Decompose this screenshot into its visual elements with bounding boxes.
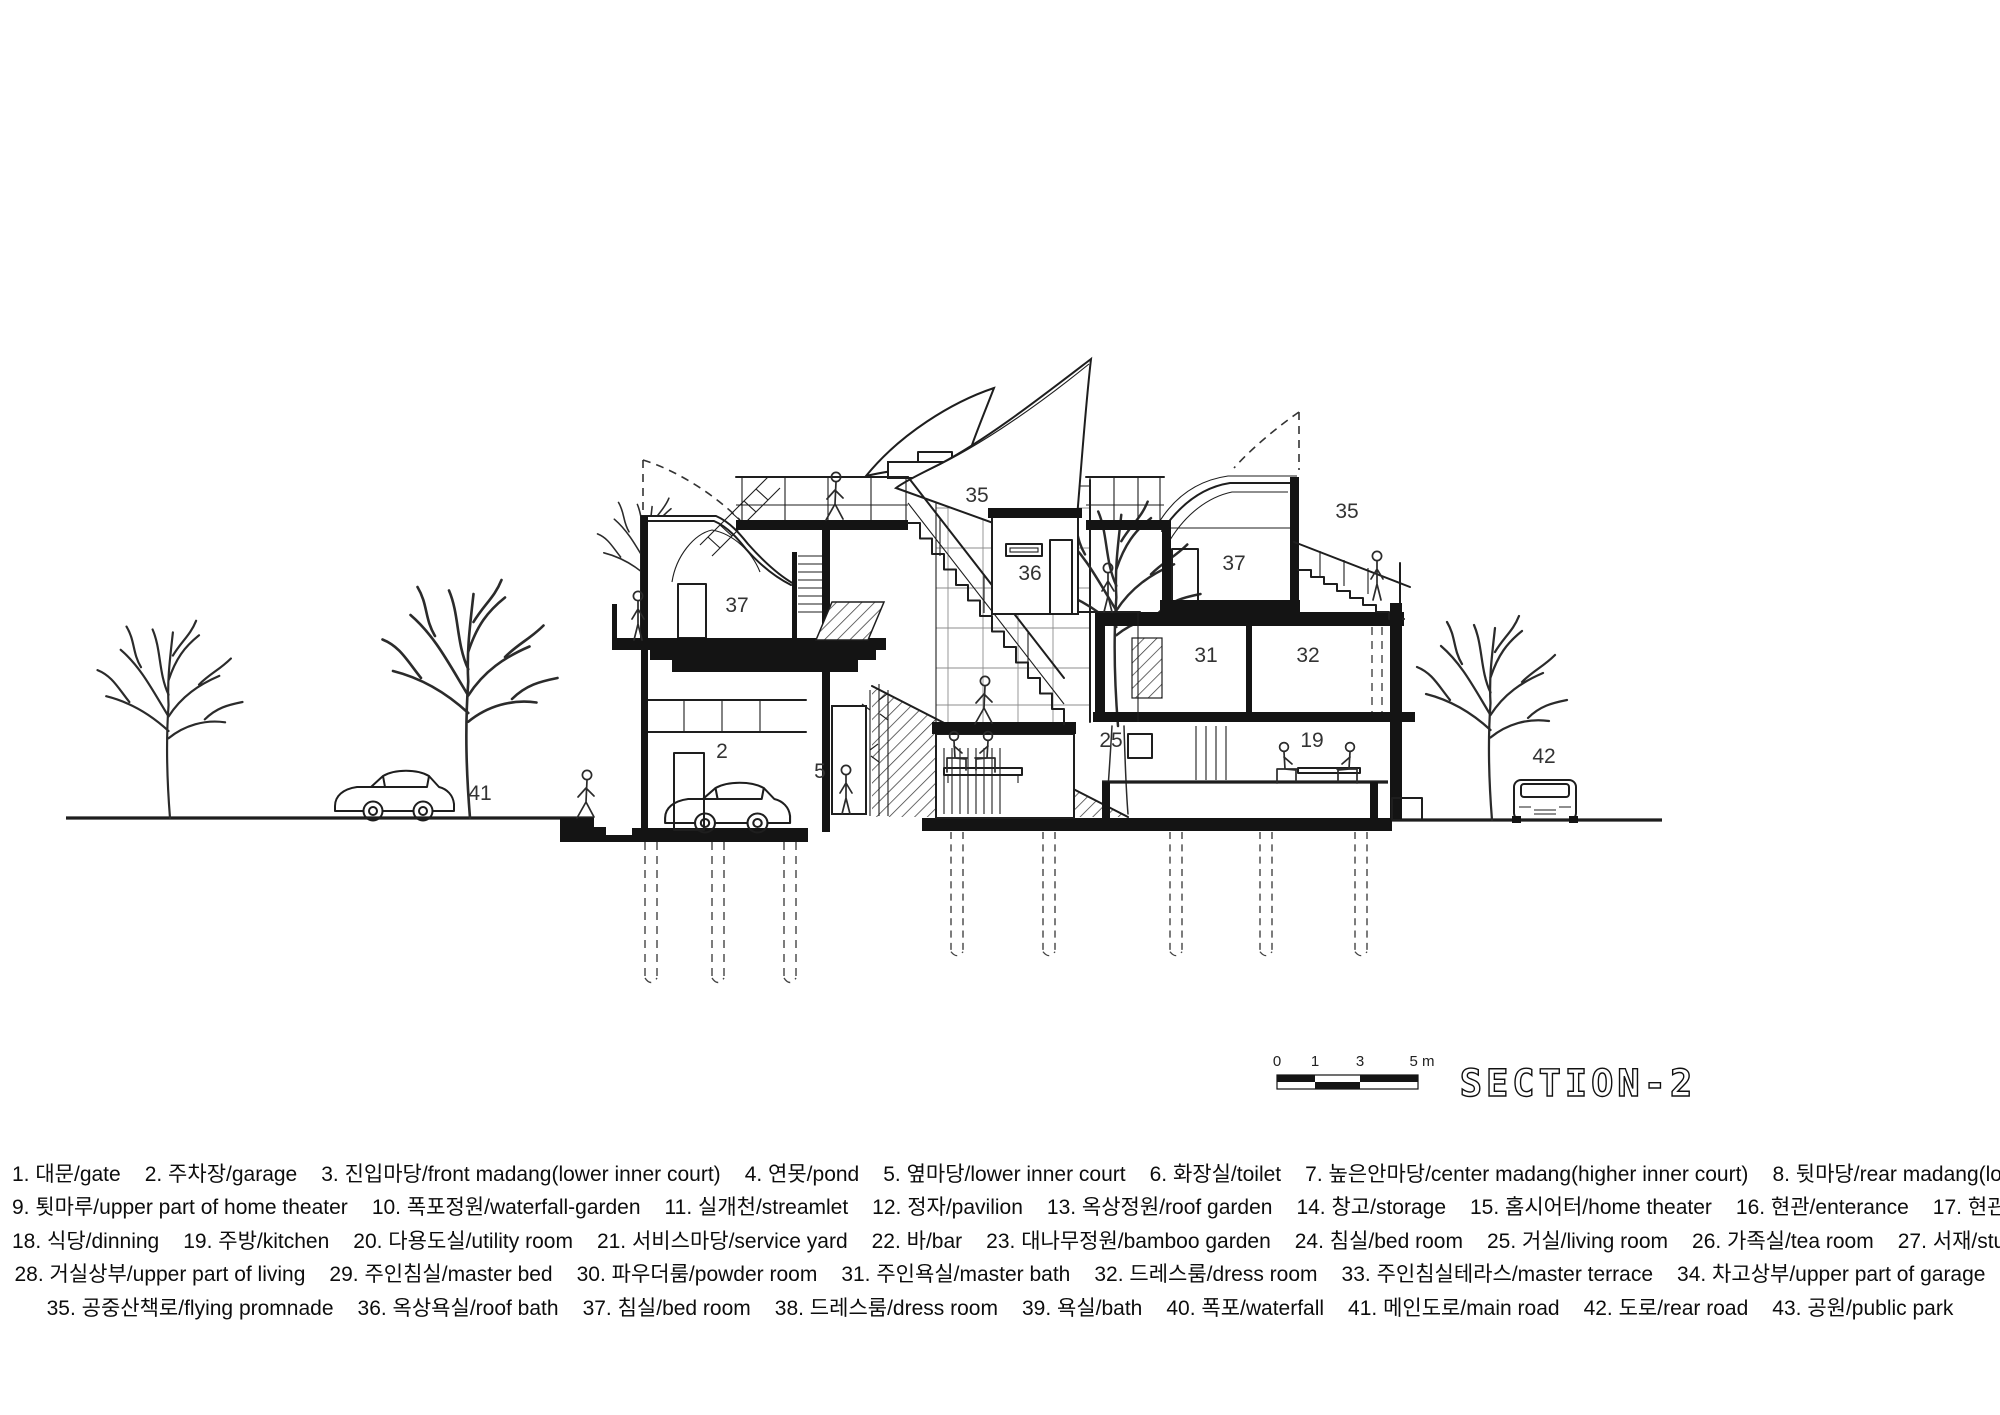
legend-item: 42. 도로/rear road	[1584, 1297, 1749, 1320]
legend-row: 1. 대문/gate2. 주차장/garage3. 진입마당/front mad…	[0, 1158, 2000, 1191]
left-building	[612, 460, 886, 832]
drawing-title: SECTION-2	[1460, 1062, 1696, 1105]
car-rear-road	[1512, 780, 1578, 823]
legend-item: 13. 옥상정원/roof garden	[1047, 1196, 1273, 1219]
legend-item: 9. 툇마루/upper part of home theater	[12, 1196, 348, 1219]
legend-item: 19. 주방/kitchen	[183, 1230, 329, 1253]
room-number-label: 35	[965, 484, 988, 507]
legend-item: 25. 거실/living room	[1487, 1230, 1668, 1253]
car-in-garage	[665, 783, 790, 833]
architectural-section-sheet: 353637373531322519254142 0 1 3 5 m SECTI…	[0, 0, 2000, 1415]
scale-tick: 0	[1273, 1053, 1281, 1070]
room-number-label: 35	[1335, 500, 1358, 523]
dashed-door	[1372, 627, 1382, 712]
legend-item: 7. 높은안마당/center madang(higher inner cour…	[1305, 1163, 1748, 1186]
partition-wall	[1246, 623, 1252, 712]
legend-item: 40. 폭포/waterfall	[1166, 1297, 1324, 1320]
scale-tick: 1	[1311, 1053, 1319, 1070]
wall-cabinet	[1128, 734, 1152, 758]
legend-item: 36. 옥상욕실/roof bath	[358, 1297, 559, 1320]
legend-item: 16. 현관/enterance	[1736, 1196, 1909, 1219]
room-number-label: 37	[1222, 552, 1245, 575]
legend-item: 37. 침실/bed room	[583, 1297, 751, 1320]
legend-item: 38. 드레스룸/dress room	[775, 1297, 998, 1320]
legend-item: 15. 홈시어터/home theater	[1470, 1196, 1712, 1219]
room-number-label: 5	[814, 760, 826, 783]
legend-item: 4. 연못/pond	[745, 1163, 860, 1186]
legend-item: 10. 폭포정원/waterfall-garden	[372, 1196, 641, 1219]
wall	[822, 523, 830, 832]
bedroom-floor-slab	[1160, 600, 1300, 612]
legend-item: 20. 다용도실/utility room	[353, 1230, 573, 1253]
legend-item: 2. 주차장/garage	[145, 1163, 298, 1186]
room-number-label: 31	[1194, 644, 1217, 667]
setback-dashed-left	[643, 460, 740, 520]
scale-bar: 0 1 3 5 m	[1273, 1053, 1435, 1089]
scale-tick: 3	[1356, 1053, 1364, 1070]
garage-window-band	[684, 700, 760, 732]
car-main-road	[335, 771, 454, 821]
wall	[1095, 612, 1105, 720]
room-number-label: 42	[1532, 745, 1555, 768]
legend-item: 6. 화장실/toilet	[1150, 1163, 1282, 1186]
court-door-niche	[832, 706, 866, 814]
house-foundation-slab	[922, 818, 1392, 831]
lattice-shaft	[1132, 638, 1162, 698]
legend-item: 23. 대나무정원/bamboo garden	[986, 1230, 1271, 1253]
rear-terrace-stair	[1298, 570, 1404, 619]
room-legend: 1. 대문/gate2. 주차장/garage3. 진입마당/front mad…	[0, 1158, 2000, 1325]
legend-item: 22. 바/bar	[872, 1230, 963, 1253]
room-number-label: 37	[725, 594, 748, 617]
deck-slab	[736, 520, 908, 530]
legend-item: 24. 침실/bed room	[1295, 1230, 1463, 1253]
room-number-label: 2	[716, 740, 728, 763]
wall	[641, 516, 648, 640]
mid-floor-slab	[1093, 712, 1415, 722]
room-number-label: 25	[1099, 729, 1122, 752]
box-roof	[988, 508, 1082, 518]
setback-dashed-right	[1234, 412, 1299, 470]
bedroom-floor-slab	[612, 638, 886, 672]
wall	[1290, 477, 1299, 603]
legend-item: 41. 메인도로/main road	[1348, 1297, 1560, 1320]
legend-item: 12. 정자/pavilion	[872, 1196, 1023, 1219]
legend-item: 27. 서재/study room	[1898, 1230, 2000, 1253]
legend-item: 32. 드레스룸/dress room	[1094, 1263, 1317, 1286]
legend-item: 11. 실개천/streamlet	[665, 1196, 849, 1219]
walkway-slab	[1086, 520, 1164, 530]
legend-item: 14. 창고/storage	[1296, 1196, 1446, 1219]
legend-item: 39. 욕실/bath	[1022, 1297, 1142, 1320]
stair-tower-treads	[798, 556, 822, 612]
wall	[792, 552, 797, 638]
foundation-piles	[645, 832, 1367, 983]
legend-item: 28. 거실상부/upper part of living	[15, 1263, 306, 1286]
right-outer-wall	[1390, 603, 1402, 820]
wall	[641, 640, 648, 832]
legend-item: 30. 파우더룸/powder room	[577, 1263, 818, 1286]
legend-item: 34. 차고상부/upper part of garage	[1677, 1263, 1985, 1286]
legend-item: 8. 뒷마당/rear madang(lower inner court)	[1772, 1163, 2000, 1186]
wall	[1162, 520, 1171, 603]
legend-item: 33. 주인침실테라스/master terrace	[1342, 1263, 1653, 1286]
room-number-label: 36	[1018, 562, 1041, 585]
curved-roof	[641, 516, 794, 648]
legend-item: 31. 주인욕실/master bath	[841, 1263, 1070, 1286]
legend-row: 35. 공중산책로/flying promnade36. 옥상욕실/roof b…	[0, 1292, 2000, 1325]
legend-row: 28. 거실상부/upper part of living29. 주인침실/ma…	[0, 1258, 2000, 1291]
legend-item: 5. 옆마당/lower inner court	[883, 1163, 1125, 1186]
scale-tick: 5 m	[1409, 1053, 1434, 1070]
room-number-label: 19	[1300, 729, 1323, 752]
room-number-label: 41	[468, 782, 491, 805]
legend-item: 1. 대문/gate	[12, 1163, 121, 1186]
legend-item: 43. 공원/public park	[1772, 1297, 1953, 1320]
legend-row: 18. 식당/dinning19. 주방/kitchen20. 다용도실/uti…	[0, 1225, 2000, 1258]
room-number-label: 32	[1296, 644, 1319, 667]
legend-item: 3. 진입마당/front madang(lower inner court)	[321, 1163, 720, 1186]
cabinet	[1196, 726, 1226, 780]
legend-item: 18. 식당/dinning	[12, 1230, 159, 1253]
garage-door	[674, 753, 704, 830]
legend-item: 29. 주인침실/master bed	[329, 1263, 552, 1286]
legend-item: 17. 현관홀/enterance hall	[1933, 1196, 2000, 1219]
right-building	[1093, 412, 1422, 820]
legend-item: 26. 가족실/tea room	[1692, 1230, 1874, 1253]
legend-item: 35. 공중산책로/flying promnade	[47, 1297, 334, 1320]
legend-item: 21. 서비스마당/service yard	[597, 1230, 848, 1253]
legend-row: 9. 툇마루/upper part of home theater10. 폭포정…	[0, 1191, 2000, 1224]
walkway-railing	[1090, 477, 1160, 520]
center-court	[932, 722, 1076, 818]
balcony-parapet	[612, 604, 617, 638]
